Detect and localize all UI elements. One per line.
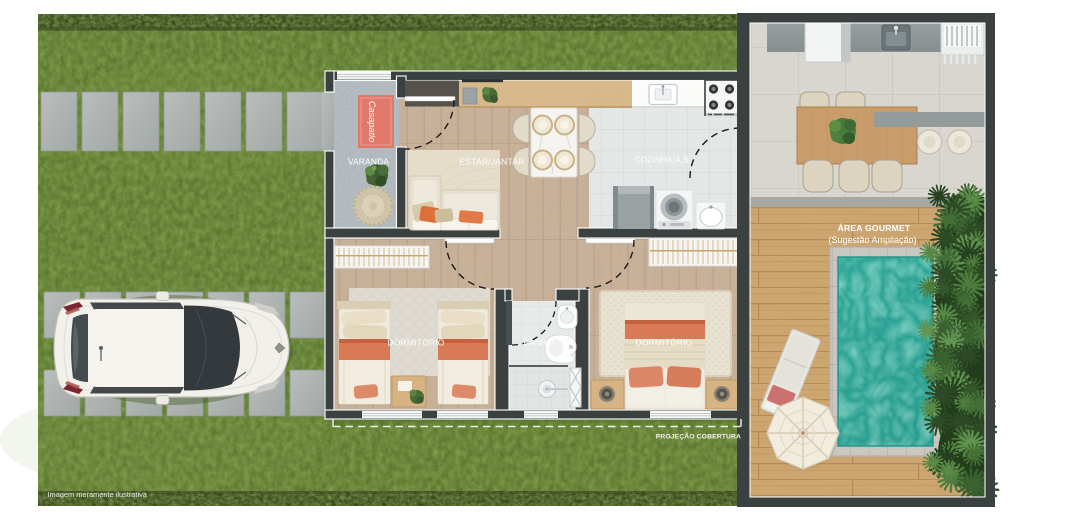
svg-text:PROJEÇÃO COBERTURA: PROJEÇÃO COBERTURA [656, 432, 741, 441]
svg-text:BANHO: BANHO [524, 339, 554, 348]
svg-text:Imagem meramente ilustrativa: Imagem meramente ilustrativa [48, 490, 148, 499]
svg-text:Casapatio: Casapatio [367, 101, 377, 142]
svg-text:DORMITÓRIO: DORMITÓRIO [387, 338, 444, 348]
svg-text:VARANDA: VARANDA [348, 157, 389, 167]
svg-text:ÁREA GOURMET: ÁREA GOURMET [838, 223, 911, 233]
svg-text:(Sugestão Ampliação): (Sugestão Ampliação) [828, 235, 916, 245]
svg-text:COZINHA/A.S.: COZINHA/A.S. [635, 156, 691, 165]
svg-text:ESTAR/JANTAR: ESTAR/JANTAR [460, 157, 525, 167]
svg-text:DORMITÓRIO: DORMITÓRIO [635, 338, 692, 348]
